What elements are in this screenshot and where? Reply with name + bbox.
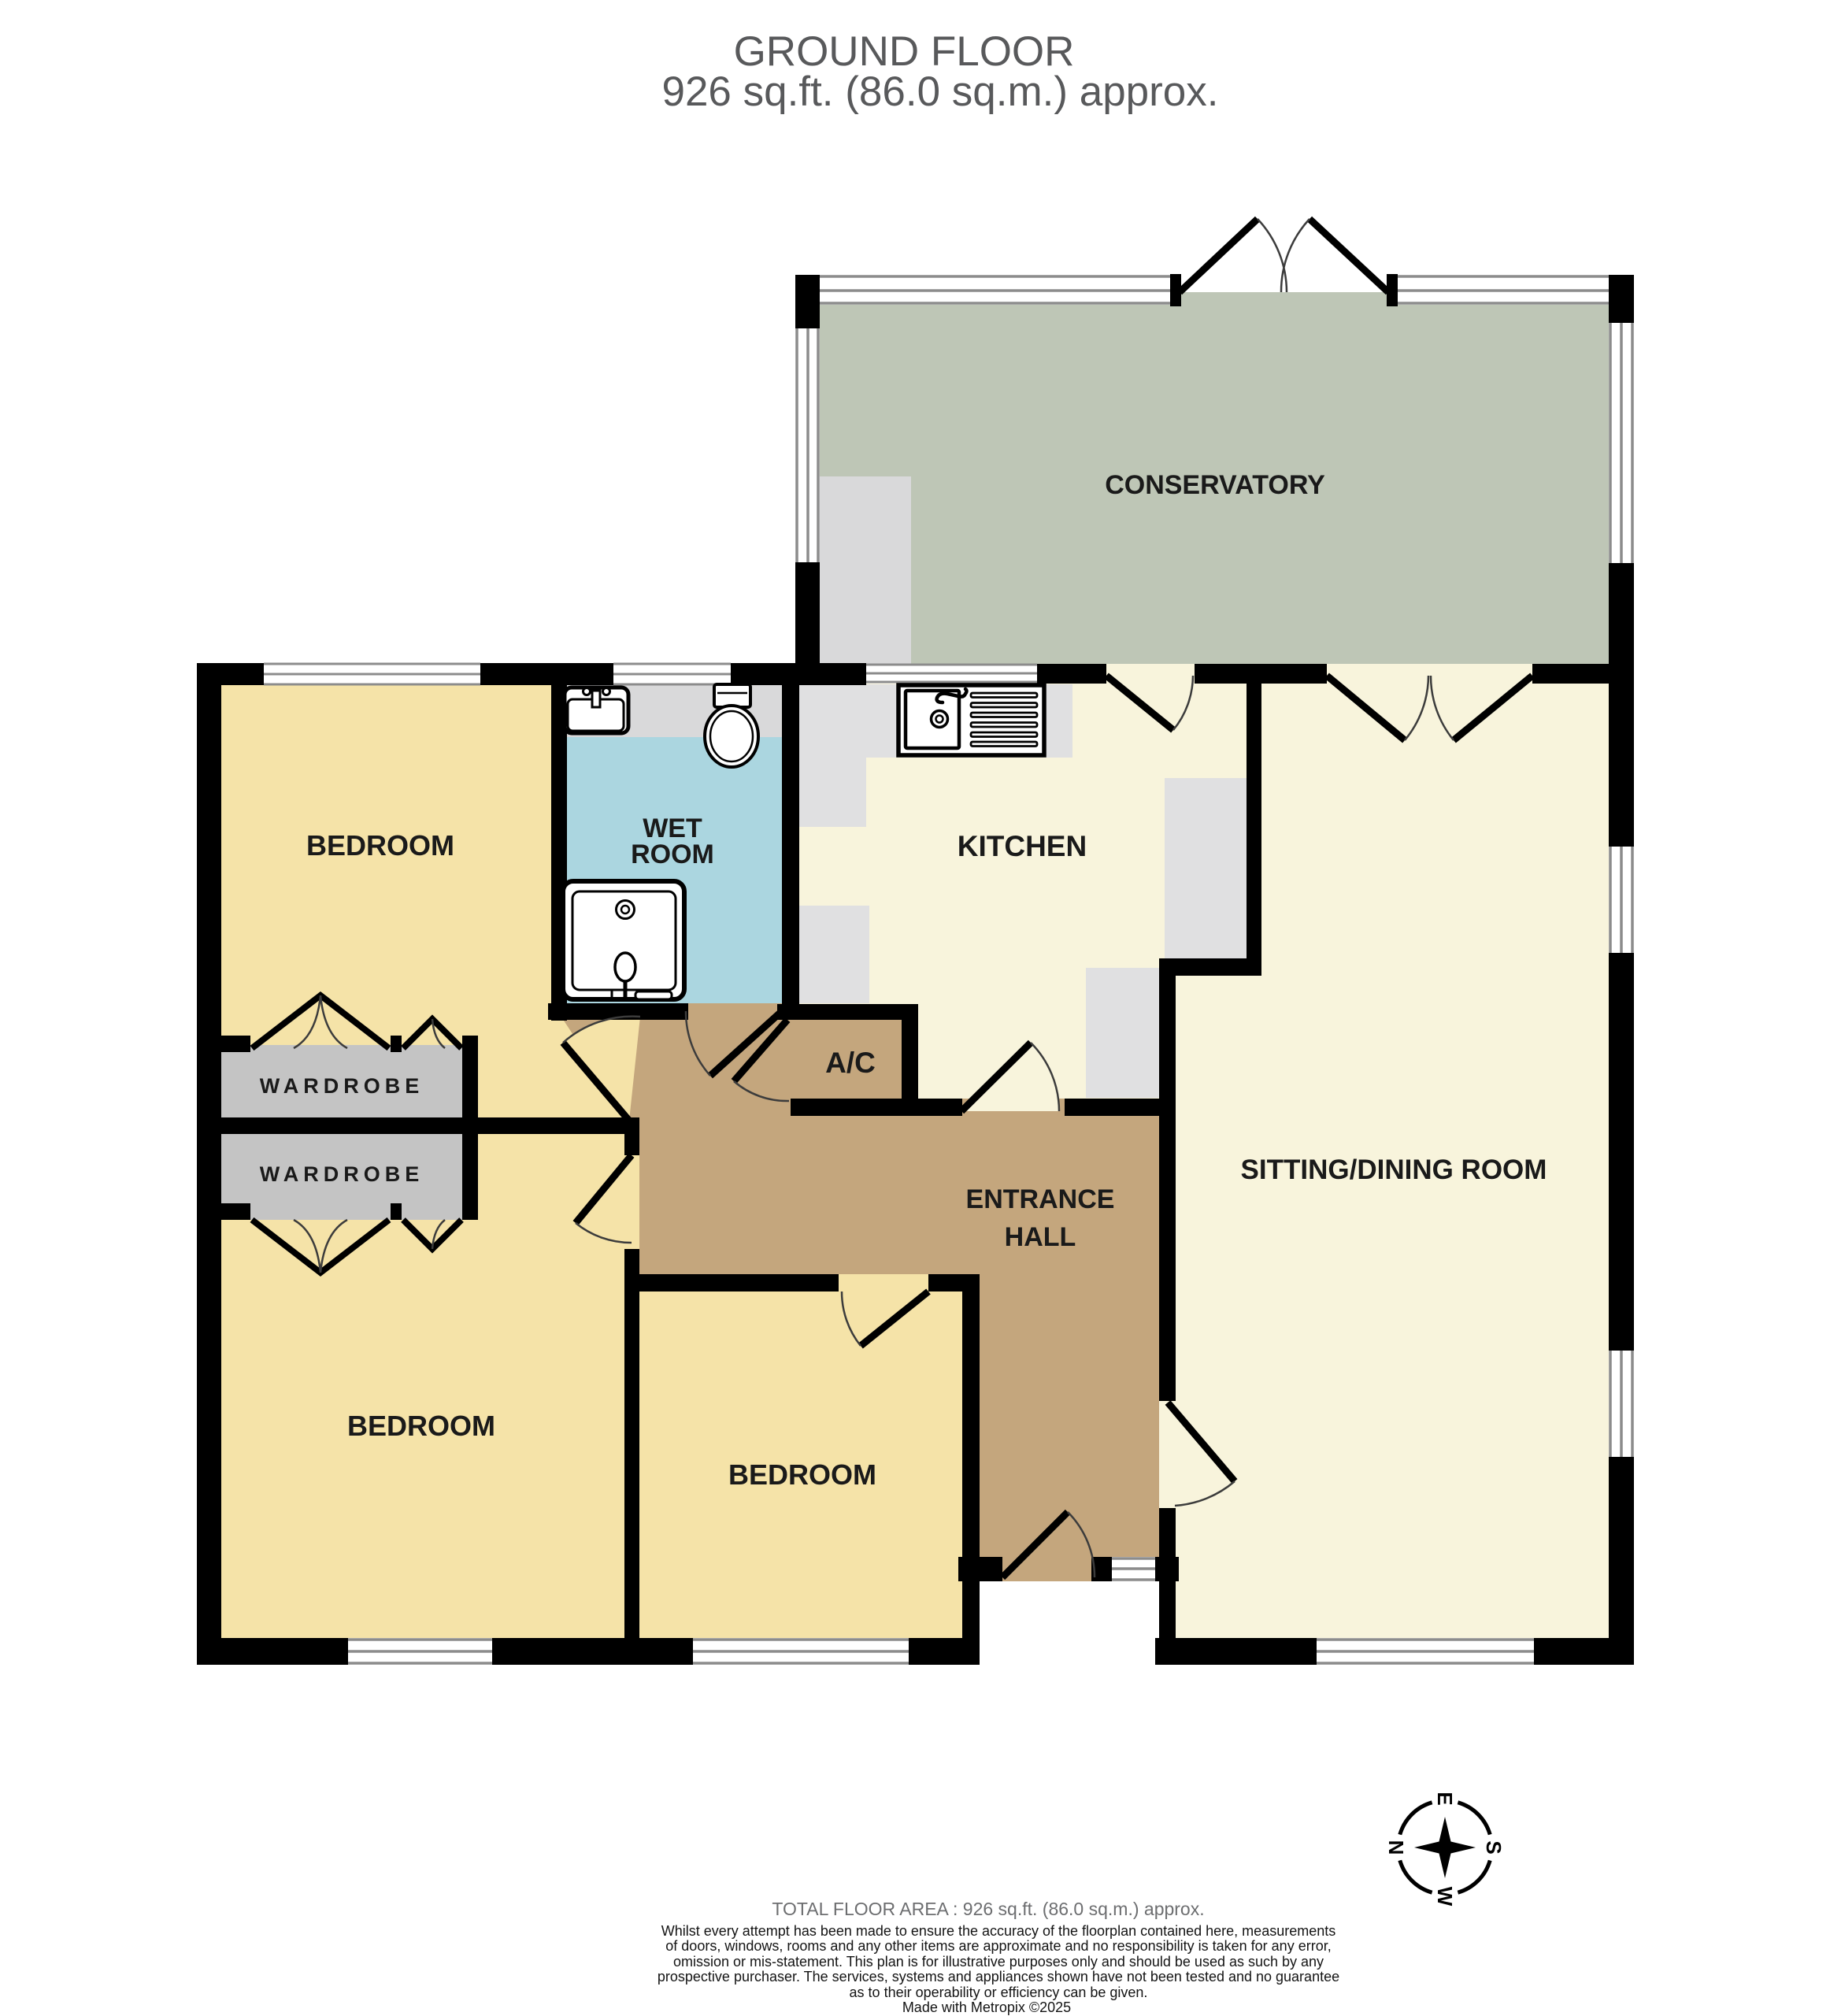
svg-text:omission or mis-statement. Thi: omission or mis-statement. This plan is …: [673, 1954, 1324, 1970]
svg-text:WARDROBE: WARDROBE: [260, 1162, 424, 1186]
svg-text:SITTING/DINING ROOM: SITTING/DINING ROOM: [1241, 1154, 1547, 1185]
svg-text:ROOM: ROOM: [631, 839, 714, 869]
svg-text:HALL: HALL: [1005, 1222, 1076, 1252]
svg-text:WARDROBE: WARDROBE: [260, 1074, 424, 1098]
svg-text:ENTRANCE: ENTRANCE: [966, 1184, 1115, 1214]
svg-text:W: W: [1433, 1887, 1457, 1907]
svg-text:Made with Metropix ©2025: Made with Metropix ©2025: [902, 1999, 1071, 2015]
svg-text:926 sq.ft. (86.0 sq.m.) approx: 926 sq.ft. (86.0 sq.m.) approx.: [661, 69, 1218, 115]
svg-text:TOTAL FLOOR AREA : 926 sq.ft.: TOTAL FLOOR AREA : 926 sq.ft. (86.0 sq.m…: [772, 1899, 1204, 1919]
svg-text:A/C: A/C: [825, 1047, 876, 1079]
svg-text:E: E: [1433, 1792, 1457, 1805]
svg-text:S: S: [1482, 1840, 1506, 1854]
svg-text:KITCHEN: KITCHEN: [958, 830, 1087, 862]
svg-text:BEDROOM: BEDROOM: [728, 1458, 876, 1491]
svg-text:prospective purchaser. The ser: prospective purchaser. The services, sys…: [658, 1969, 1339, 1984]
svg-text:N: N: [1384, 1840, 1408, 1855]
svg-text:as to their operability or eff: as to their operability or efficiency ca…: [850, 1984, 1148, 2000]
svg-text:BEDROOM: BEDROOM: [306, 829, 454, 862]
svg-text:BEDROOM: BEDROOM: [347, 1410, 495, 1442]
svg-text:of doors, windows, rooms and a: of doors, windows, rooms and any other i…: [665, 1938, 1331, 1954]
svg-text:Whilst every attempt has been: Whilst every attempt has been made to en…: [661, 1923, 1335, 1939]
svg-text:CONSERVATORY: CONSERVATORY: [1105, 470, 1325, 500]
